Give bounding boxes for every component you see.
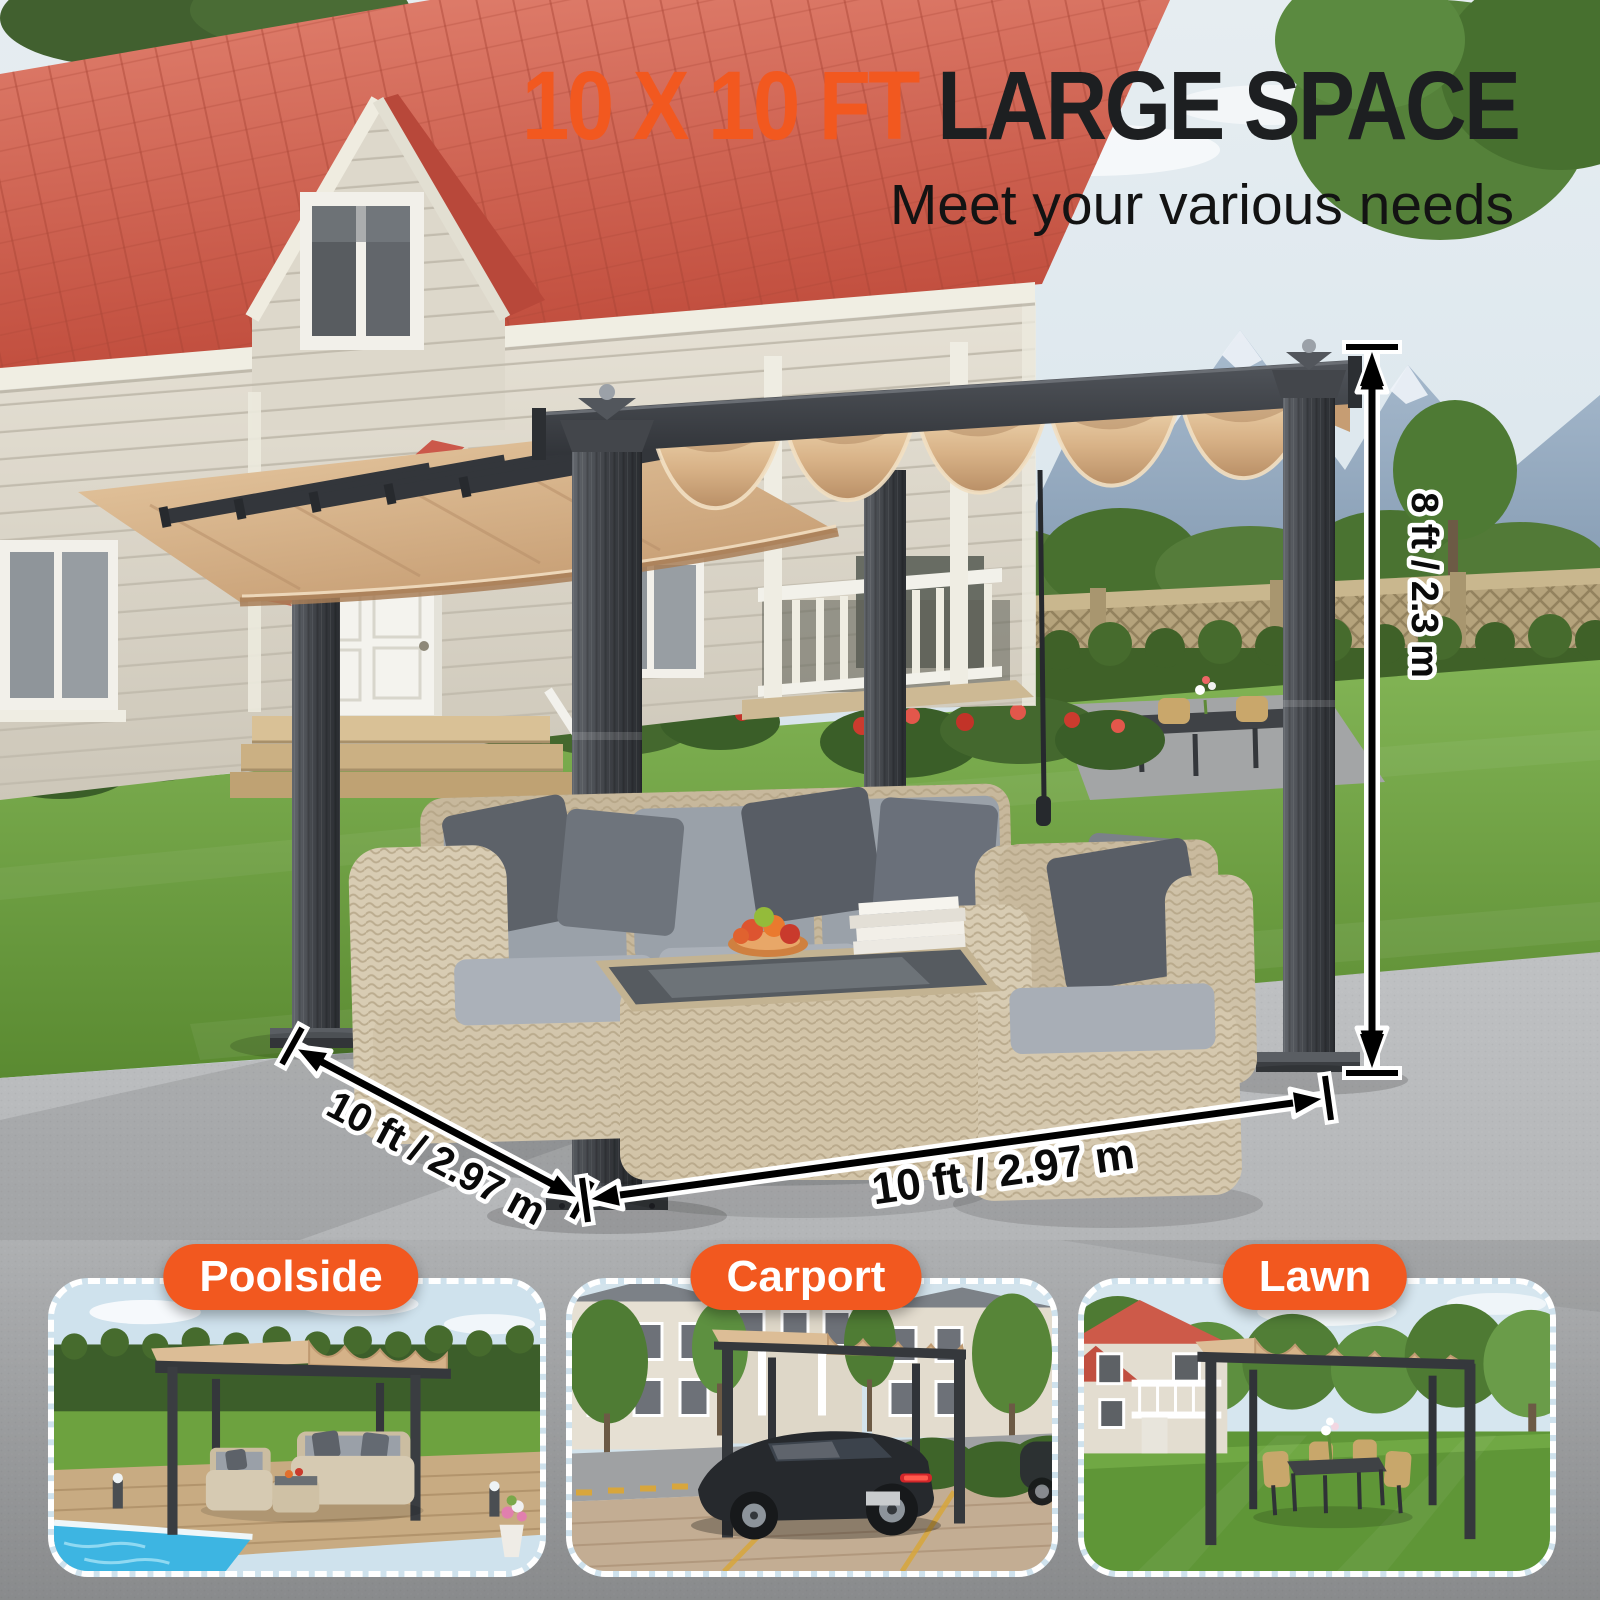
product-image: 8 ft / 2.3 m 10 ft / 2.97 m 10 ft / 2.97…	[0, 0, 1600, 1600]
subtitle: Meet your various needs	[386, 172, 1514, 238]
use-case-image-carport	[566, 1278, 1058, 1577]
page-title: 10 X 10 FTLARGE SPACE	[522, 50, 1518, 162]
use-case-badge-lawn: Lawn	[1223, 1244, 1407, 1310]
height-dimension-label: 8 ft / 2.3 m	[1403, 492, 1445, 678]
headline: 10 X 10 FTLARGE SPACE Meet your various …	[386, 50, 1518, 238]
use-case-image-poolside	[48, 1278, 546, 1577]
poolside-scene	[54, 1284, 540, 1571]
lawn-scene	[1084, 1284, 1550, 1571]
use-case-badge-poolside: Poolside	[163, 1244, 418, 1310]
use-case-badge-carport: Carport	[691, 1244, 922, 1310]
title-highlight: 10 X 10 FT	[522, 51, 918, 160]
carport-scene	[572, 1284, 1052, 1571]
use-case-image-lawn	[1078, 1278, 1556, 1577]
title-rest: LARGE SPACE	[937, 51, 1518, 160]
books	[848, 896, 967, 955]
